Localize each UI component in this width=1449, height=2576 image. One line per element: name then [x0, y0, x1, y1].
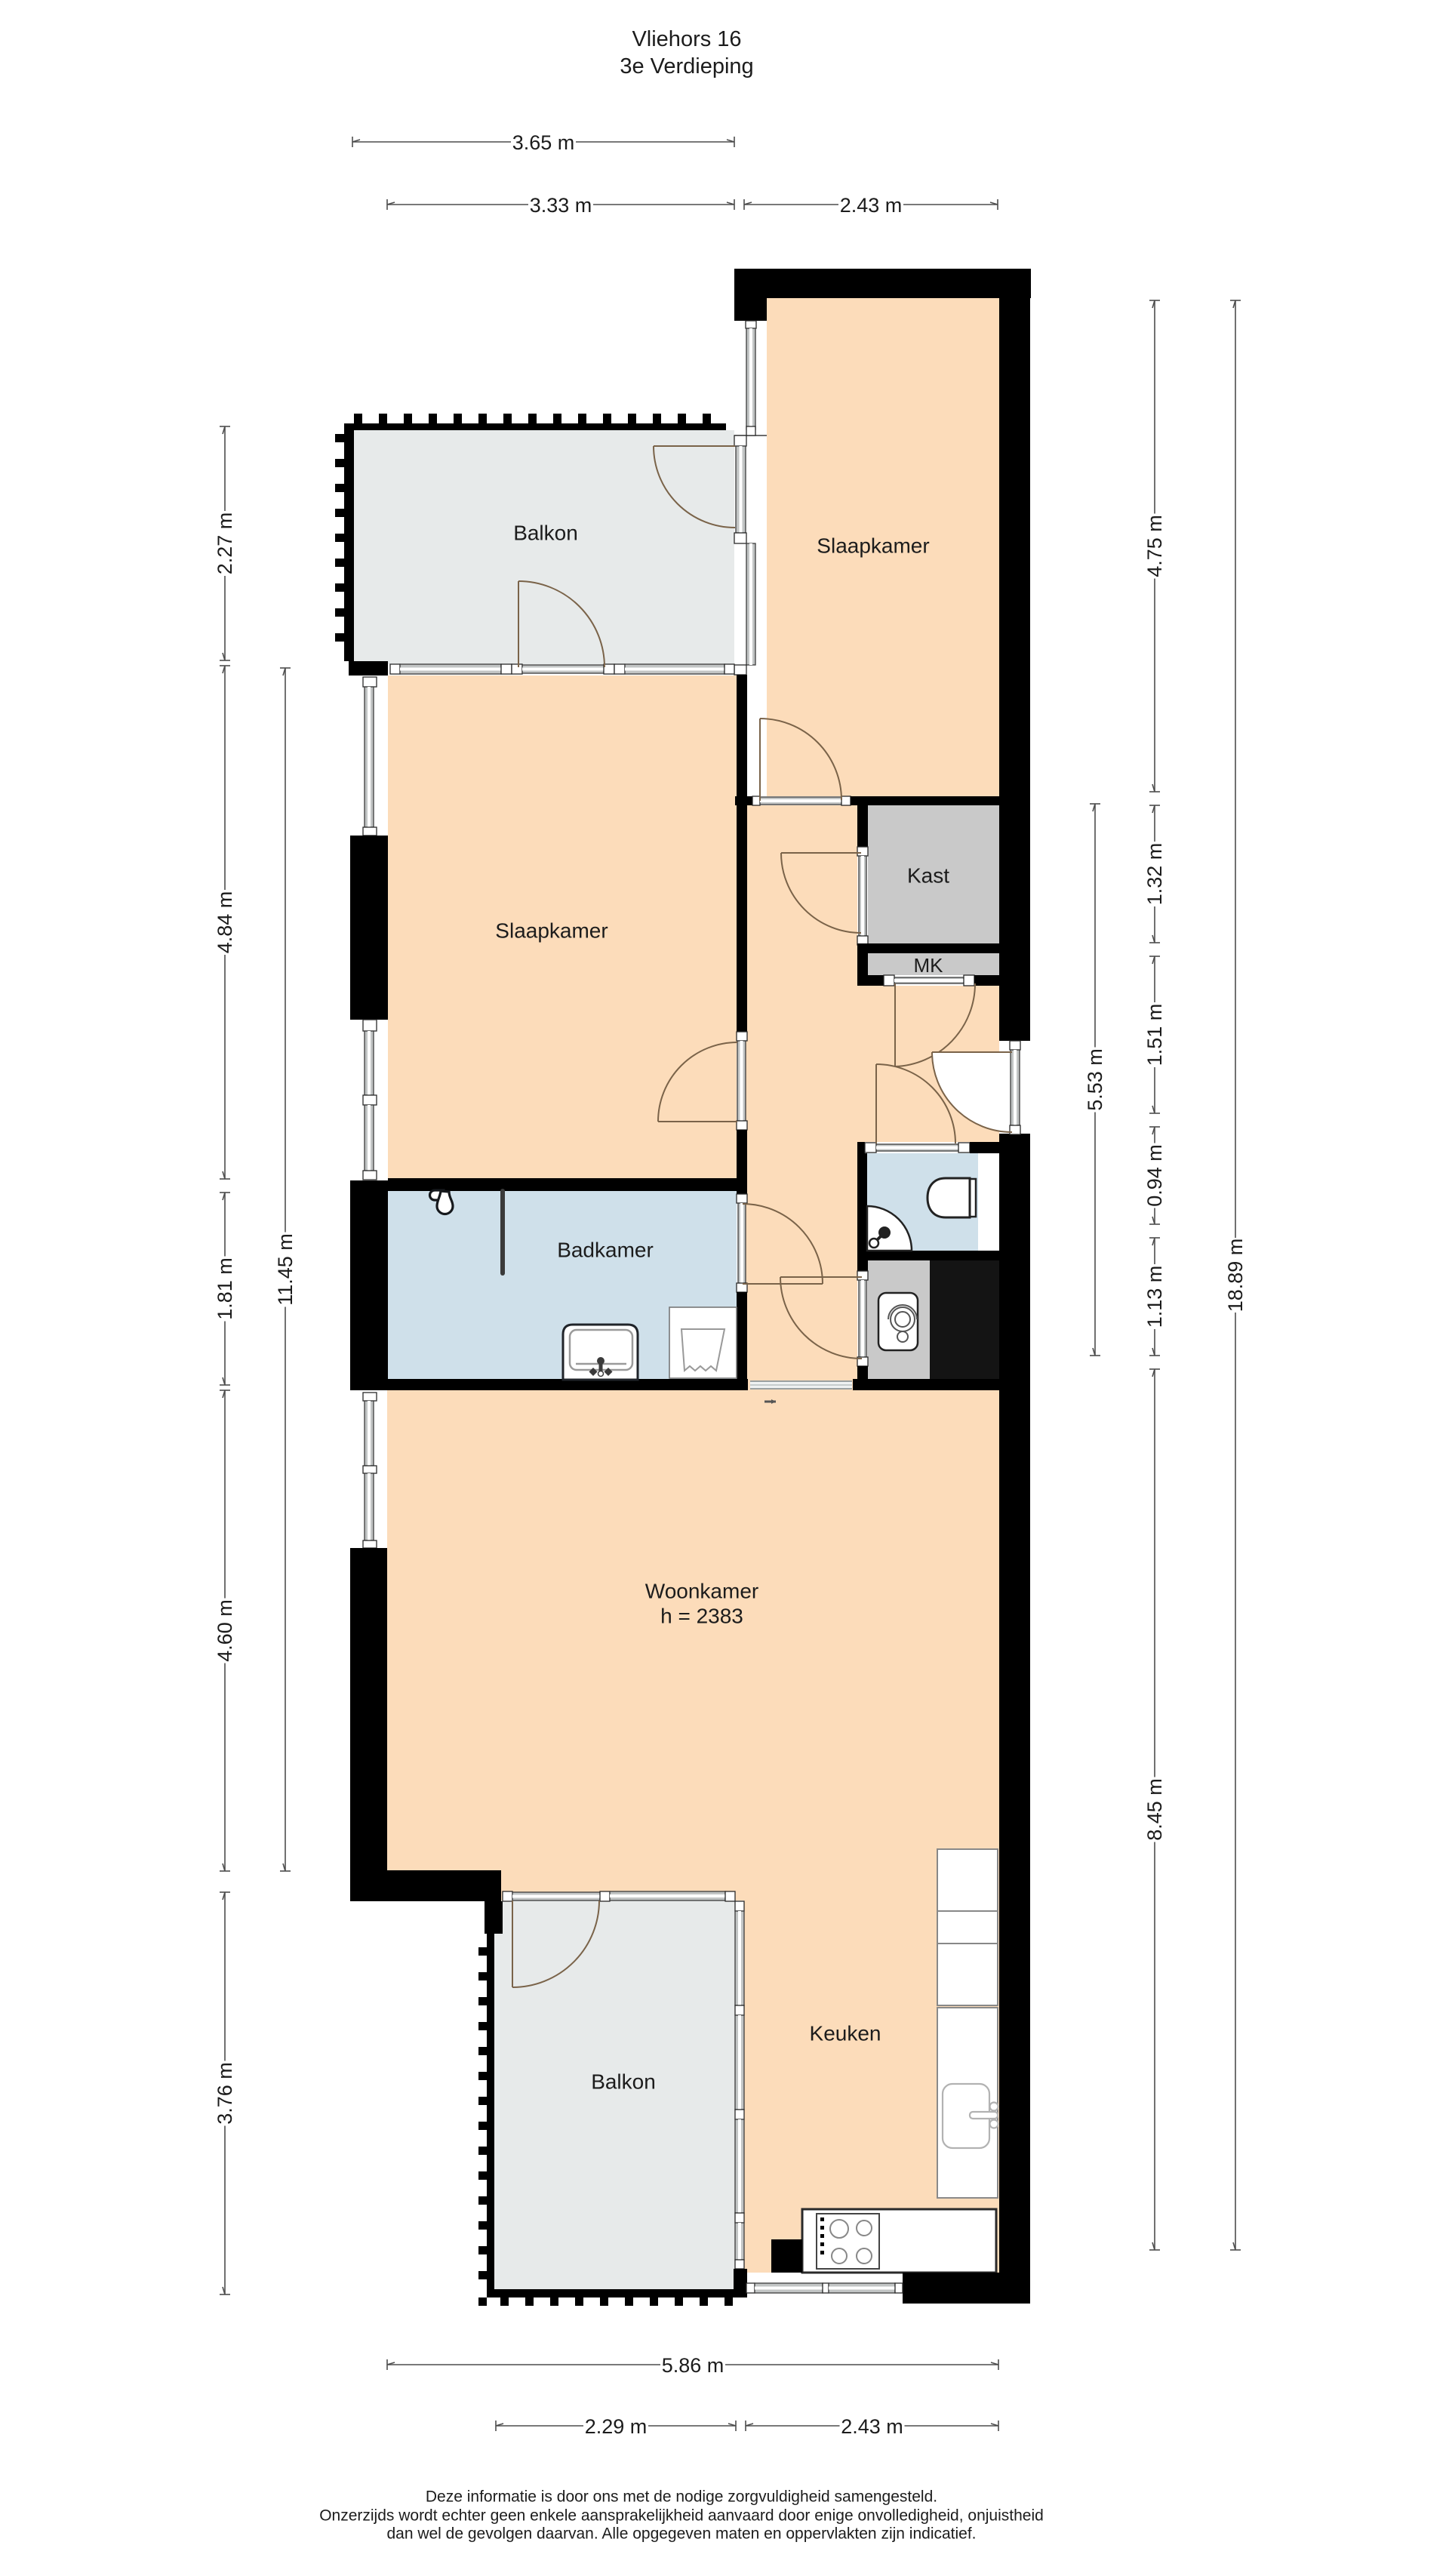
- svg-text:3.76 m: 3.76 m: [214, 2062, 236, 2125]
- svg-text:Slaapkamer: Slaapkamer: [495, 919, 608, 943]
- svg-text:3e Verdieping: 3e Verdieping: [620, 54, 753, 78]
- svg-text:Badkamer: Badkamer: [557, 1239, 654, 1262]
- svg-text:4.60 m: 4.60 m: [214, 1599, 236, 1662]
- svg-text:Vliehors 16: Vliehors 16: [632, 27, 741, 51]
- svg-text:2.43 m: 2.43 m: [841, 2415, 903, 2438]
- svg-text:Slaapkamer: Slaapkamer: [817, 534, 929, 558]
- svg-text:1.51 m: 1.51 m: [1143, 1004, 1166, 1066]
- svg-text:1.32 m: 1.32 m: [1143, 843, 1166, 906]
- svg-text:Keuken: Keuken: [810, 2022, 881, 2045]
- svg-text:5.86 m: 5.86 m: [662, 2354, 724, 2377]
- svg-text:8.45 m: 8.45 m: [1143, 1778, 1166, 1841]
- svg-text:5.53 m: 5.53 m: [1084, 1048, 1106, 1111]
- svg-text:2.27 m: 2.27 m: [214, 512, 236, 575]
- svg-text:2.43 m: 2.43 m: [840, 194, 903, 217]
- svg-text:4.75 m: 4.75 m: [1143, 515, 1166, 577]
- svg-text:Onzerzijds wordt echter geen e: Onzerzijds wordt echter geen enkele aans…: [319, 2507, 1044, 2525]
- svg-text:11.45 m: 11.45 m: [274, 1233, 297, 1306]
- svg-text:2.29 m: 2.29 m: [585, 2415, 648, 2438]
- svg-text:Kast: Kast: [907, 864, 949, 888]
- svg-text:dan wel de gevolgen daarvan. A: dan wel de gevolgen daarvan. Alle opgege…: [386, 2525, 976, 2543]
- svg-text:18.89 m: 18.89 m: [1224, 1239, 1247, 1313]
- svg-text:1.13 m: 1.13 m: [1143, 1266, 1166, 1328]
- svg-text:1.81 m: 1.81 m: [214, 1257, 236, 1320]
- svg-text:Balkon: Balkon: [591, 2070, 656, 2094]
- svg-text:h = 2383: h = 2383: [660, 1605, 743, 1628]
- svg-text:0.94 m: 0.94 m: [1143, 1144, 1166, 1207]
- svg-text:Balkon: Balkon: [513, 522, 578, 545]
- svg-text:Deze informatie is door ons me: Deze informatie is door ons met de nodig…: [426, 2488, 937, 2506]
- svg-text:Woonkamer: Woonkamer: [645, 1580, 758, 1603]
- svg-text:3.33 m: 3.33 m: [530, 194, 592, 217]
- svg-text:MK: MK: [914, 954, 944, 977]
- svg-text:4.84 m: 4.84 m: [214, 891, 236, 954]
- svg-text:3.65 m: 3.65 m: [512, 131, 575, 154]
